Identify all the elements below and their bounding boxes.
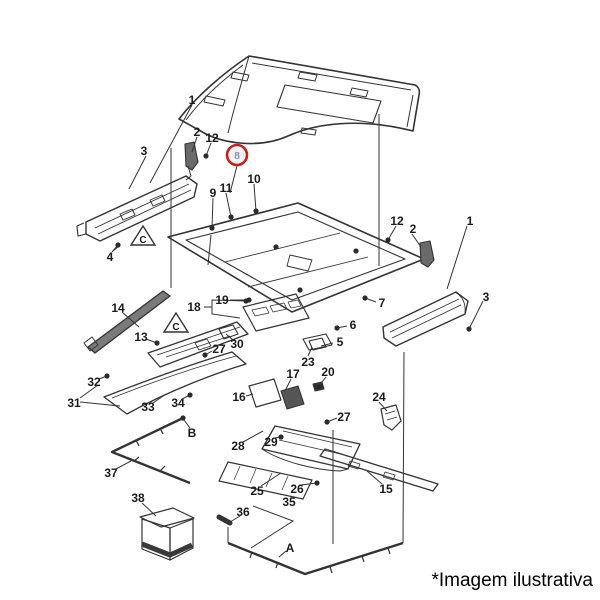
part-shape bbox=[225, 233, 340, 262]
part-callout-1: 1 bbox=[467, 214, 474, 228]
part-callout-A: A bbox=[286, 541, 295, 555]
leader-line bbox=[129, 156, 146, 189]
part-shape bbox=[228, 543, 403, 574]
part-shape bbox=[390, 299, 459, 332]
part-callout-3: 3 bbox=[141, 144, 148, 158]
fastener-dot bbox=[115, 242, 120, 247]
leader-line bbox=[254, 184, 256, 211]
part-shape bbox=[287, 255, 312, 271]
leader-line bbox=[116, 461, 131, 469]
part-shape bbox=[387, 417, 397, 420]
part-callout-27: 27 bbox=[212, 342, 226, 356]
exploded-parts-diagram: 1321291110412213719181413302765232017162… bbox=[0, 0, 600, 600]
part-shape bbox=[330, 567, 332, 573]
part-callout-5: 5 bbox=[337, 335, 344, 349]
part-shape bbox=[168, 203, 424, 312]
leader-line bbox=[447, 226, 467, 289]
part-callout-33: 33 bbox=[141, 400, 155, 414]
part-shape bbox=[160, 466, 165, 471]
part-callout-2: 2 bbox=[194, 125, 201, 139]
part-shape bbox=[234, 466, 240, 480]
part-callout-28: 28 bbox=[231, 439, 245, 453]
part-callout-19: 19 bbox=[215, 293, 229, 307]
fastener-dot bbox=[104, 373, 109, 378]
parts-catalog-page: 1321291110412213719181413302765232017162… bbox=[0, 0, 600, 600]
fastener-dot bbox=[154, 340, 159, 345]
fastener-dot bbox=[314, 480, 319, 485]
part-callout-27: 27 bbox=[337, 410, 351, 424]
part-callout-13: 13 bbox=[134, 330, 148, 344]
part-shape bbox=[185, 142, 198, 170]
part-callout-3: 3 bbox=[483, 290, 490, 304]
part-callout-14: 14 bbox=[111, 301, 125, 315]
part-callout-25: 25 bbox=[250, 484, 264, 498]
part-shape bbox=[301, 128, 316, 135]
part-shape bbox=[219, 517, 230, 523]
part-callout-10: 10 bbox=[247, 172, 261, 186]
part-shape bbox=[142, 544, 192, 555]
fastener-dot bbox=[278, 434, 283, 439]
part-shape bbox=[204, 96, 225, 106]
part-shape bbox=[281, 386, 304, 409]
fastener-dot bbox=[334, 325, 339, 330]
part-shape bbox=[249, 379, 281, 407]
part-shape bbox=[385, 411, 395, 414]
part-callout-20: 20 bbox=[321, 365, 335, 379]
fastener-dot bbox=[209, 225, 214, 230]
part-callout-29: 29 bbox=[264, 435, 278, 449]
fastener-dot bbox=[353, 248, 358, 253]
part-callout-17: 17 bbox=[286, 367, 300, 381]
part-shape bbox=[283, 431, 352, 447]
fastener-dot bbox=[466, 326, 471, 331]
triangle-c-label: C bbox=[139, 235, 146, 246]
fastener-dot bbox=[253, 208, 258, 213]
fastener-dot bbox=[315, 384, 320, 389]
part-shape bbox=[303, 334, 332, 350]
part-shape bbox=[112, 418, 190, 483]
part-callout-B: B bbox=[188, 426, 197, 440]
part-callout-6: 6 bbox=[350, 318, 357, 332]
fastener-dot bbox=[273, 244, 278, 249]
leader-line bbox=[469, 301, 483, 329]
leader-line bbox=[403, 352, 404, 543]
fastener-dot bbox=[297, 287, 302, 292]
part-shape bbox=[282, 476, 288, 490]
part-callout-16: 16 bbox=[232, 390, 246, 404]
part-callout-24: 24 bbox=[372, 390, 386, 404]
part-shape bbox=[150, 195, 165, 206]
part-shape bbox=[383, 292, 468, 346]
fastener-dot bbox=[228, 214, 233, 219]
fastener-dot bbox=[187, 392, 192, 397]
part-shape bbox=[120, 209, 135, 220]
part-shape bbox=[248, 257, 368, 287]
part-callout-36: 36 bbox=[236, 505, 250, 519]
part-callout-11: 11 bbox=[220, 181, 233, 195]
part-shape bbox=[250, 469, 256, 483]
part-shape bbox=[231, 72, 249, 81]
part-callout-30: 30 bbox=[230, 337, 244, 351]
fastener-dot bbox=[246, 297, 251, 302]
part-callout-23: 23 bbox=[301, 355, 315, 369]
fastener-dot bbox=[203, 153, 208, 158]
triangle-c-label: C bbox=[172, 322, 179, 333]
part-shape bbox=[350, 88, 368, 97]
part-callout-2: 2 bbox=[410, 222, 417, 236]
part-shape bbox=[407, 95, 413, 127]
part-callout-12: 12 bbox=[205, 131, 219, 145]
part-callout-35: 35 bbox=[282, 495, 296, 509]
part-shape bbox=[420, 241, 434, 267]
leader-line bbox=[243, 431, 263, 442]
leader-line bbox=[212, 198, 213, 228]
leader-line bbox=[153, 394, 166, 403]
part-shape bbox=[252, 63, 411, 90]
part-callout-31: 31 bbox=[67, 396, 81, 410]
part-callout-38: 38 bbox=[131, 491, 145, 505]
part-callout-37: 37 bbox=[104, 466, 118, 480]
illustrative-caption: *Imagem ilustrativa bbox=[431, 570, 593, 592]
highlighted-part-callout-8: 8 bbox=[234, 150, 240, 162]
part-shape bbox=[288, 300, 301, 308]
part-shape bbox=[208, 235, 211, 265]
part-shape bbox=[77, 223, 86, 236]
part-shape bbox=[140, 508, 194, 527]
part-callout-15: 15 bbox=[379, 482, 393, 496]
part-callout-9: 9 bbox=[210, 186, 217, 200]
part-shape bbox=[392, 305, 461, 338]
fastener-dot bbox=[202, 352, 207, 357]
part-shape bbox=[252, 307, 269, 316]
part-callout-18: 18 bbox=[187, 300, 201, 314]
part-shape bbox=[388, 548, 390, 554]
part-shape bbox=[381, 405, 401, 430]
fastener-dot bbox=[324, 419, 329, 424]
leader-line bbox=[226, 193, 231, 217]
part-shape bbox=[228, 56, 249, 133]
fastener-dot bbox=[385, 237, 390, 242]
part-shape bbox=[134, 457, 139, 461]
fastener-dot bbox=[362, 295, 367, 300]
part-callout-12: 12 bbox=[390, 214, 404, 228]
fastener-dot bbox=[180, 415, 185, 420]
part-callout-1: 1 bbox=[189, 93, 196, 107]
part-callout-4: 4 bbox=[107, 250, 114, 264]
leader-line bbox=[212, 307, 240, 318]
part-callout-34: 34 bbox=[171, 396, 185, 410]
part-callout-32: 32 bbox=[87, 375, 101, 389]
part-callout-7: 7 bbox=[379, 296, 386, 310]
part-callout-26: 26 bbox=[290, 482, 304, 496]
